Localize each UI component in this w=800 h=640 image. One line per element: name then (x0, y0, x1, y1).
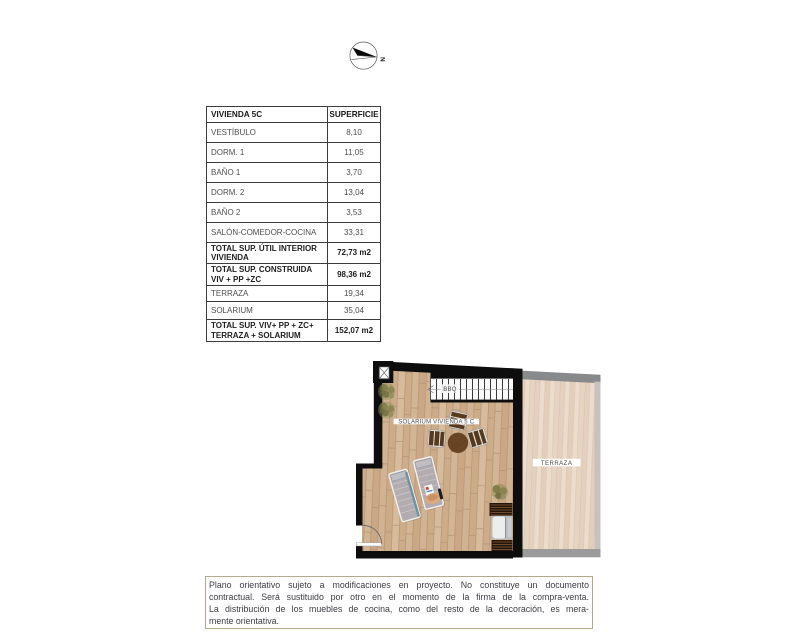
svg-text:BBQ: BBQ (443, 387, 457, 393)
svg-text:SOLARIUM VIVIENDA 5 C: SOLARIUM VIVIENDA 5 C (398, 420, 474, 426)
svg-text:TERRAZA: TERRAZA (541, 461, 573, 467)
svg-text:N: N (379, 57, 386, 62)
